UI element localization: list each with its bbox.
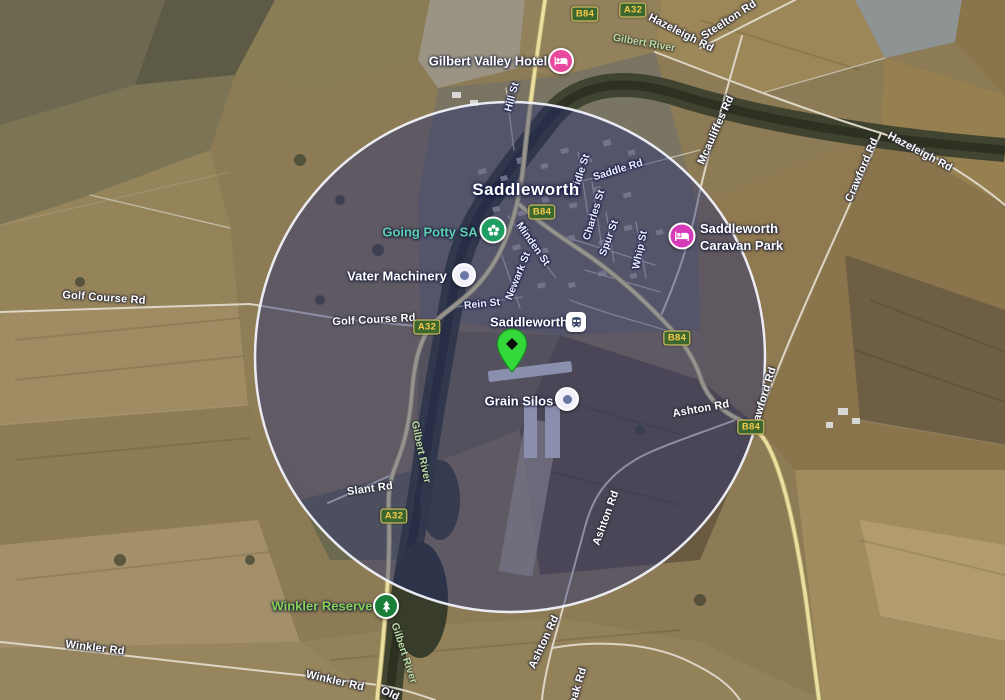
route-badge-b84-town: B84 (528, 205, 555, 220)
generic-poi-dot-icon[interactable] (452, 263, 476, 287)
poi-label-winkler-reserve[interactable]: Winkler Reserve (271, 599, 372, 614)
location-pin[interactable] (495, 328, 529, 374)
tree-icon[interactable] (373, 593, 399, 619)
train-station-icon[interactable] (566, 312, 586, 332)
poi-label-going-potty[interactable]: Going Potty SA (382, 225, 477, 240)
town-label-saddleworth[interactable]: Saddleworth (472, 180, 580, 200)
google-maps-satellite-view[interactable]: B84 A32 B84 A32 A32 B84 B84 Hazeleigh Rd… (0, 0, 1005, 700)
generic-poi-dot-icon[interactable] (555, 387, 579, 411)
hotel-bed-icon[interactable] (548, 48, 574, 74)
route-badge-a32-top: A32 (619, 3, 646, 18)
poi-label-caravan-park[interactable]: Saddleworth Caravan Park (700, 220, 783, 254)
flower-icon[interactable] (480, 217, 507, 244)
poi-label-grain-silos[interactable]: Grain Silos (485, 394, 554, 409)
route-badge-b84-top: B84 (571, 7, 598, 22)
route-badge-b84-station: B84 (663, 331, 690, 346)
route-badge-a32-golf: A32 (413, 320, 440, 335)
poi-label-gilbert-valley-hotel[interactable]: Gilbert Valley Hotel (429, 54, 548, 69)
route-badge-a32-south: A32 (380, 509, 407, 524)
poi-label-vater-machinery[interactable]: Vater Machinery (347, 269, 447, 284)
caravan-park-line2: Caravan Park (700, 237, 783, 254)
route-badge-b84-east: B84 (737, 420, 764, 435)
caravan-park-line1: Saddleworth (700, 220, 783, 237)
caravan-park-bed-icon[interactable] (669, 223, 696, 250)
